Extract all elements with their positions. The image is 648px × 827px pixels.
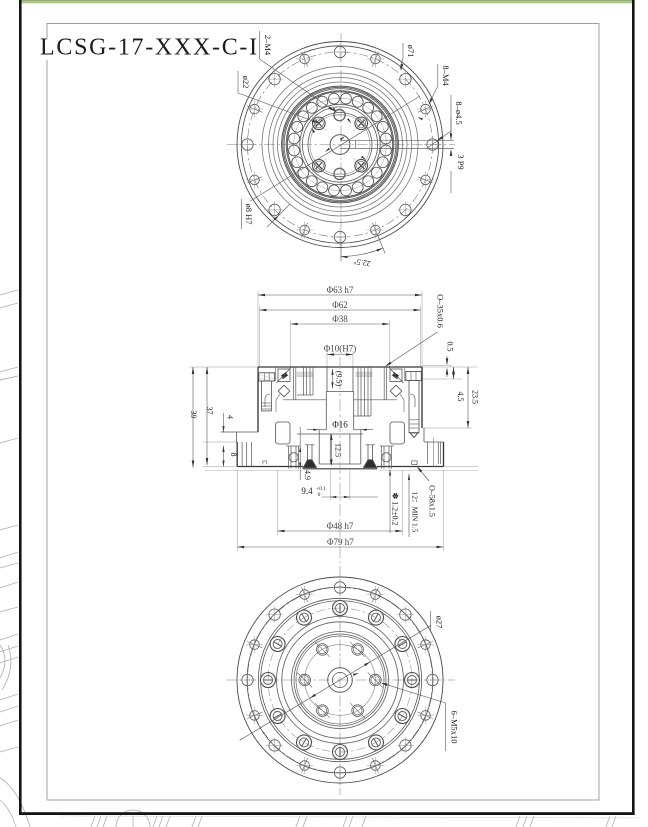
svg-text:Φ10(H7): Φ10(H7) [324, 343, 357, 353]
svg-text:8: 8 [229, 453, 238, 457]
svg-text:37: 37 [205, 407, 214, 415]
svg-text:0.5: 0.5 [446, 342, 455, 352]
svg-text:Φ38: Φ38 [332, 314, 348, 324]
svg-text:0: 0 [318, 492, 321, 498]
svg-text:8–M4: 8–M4 [441, 65, 451, 86]
svg-text:Φ79 h7: Φ79 h7 [327, 537, 354, 547]
svg-text:Φ62: Φ62 [332, 300, 348, 310]
svg-text:4: 4 [226, 415, 235, 419]
svg-text:Φ16: Φ16 [332, 419, 348, 429]
svg-text:4.5: 4.5 [456, 392, 465, 402]
svg-text:(9.5): (9.5) [335, 371, 344, 387]
svg-text:9.4: 9.4 [301, 486, 313, 496]
svg-text:12.5: 12.5 [334, 443, 343, 457]
svg-text:8–ø4.5: 8–ø4.5 [454, 101, 464, 124]
svg-text:3 P9: 3 P9 [456, 154, 466, 169]
svg-text:ø22: ø22 [241, 76, 251, 89]
svg-text:4.9: 4.9 [303, 470, 312, 480]
svg-text:✽ 1.2±0.2: ✽ 1.2±0.2 [391, 492, 400, 525]
svg-text:LCSG-17-XXX-C-I: LCSG-17-XXX-C-I [40, 35, 259, 61]
svg-text:ø8 H7: ø8 H7 [244, 203, 254, 224]
svg-text:O–58x1.5: O–58x1.5 [428, 485, 437, 517]
svg-text:Φ48 h7: Φ48 h7 [327, 521, 354, 531]
svg-text:39: 39 [189, 411, 198, 419]
svg-text:ø27: ø27 [435, 616, 445, 629]
svg-text:2–M4: 2–M4 [263, 35, 273, 56]
svg-text:23.5: 23.5 [471, 390, 480, 404]
svg-text:Φ63 h7: Φ63 h7 [327, 285, 354, 295]
svg-text:O–35x0.6: O–35x0.6 [436, 294, 446, 328]
svg-text:12：MIN 1.5: 12：MIN 1.5 [411, 492, 420, 533]
svg-text:6–M5x10: 6–M5x10 [450, 710, 460, 743]
svg-text:ø71: ø71 [406, 45, 416, 58]
